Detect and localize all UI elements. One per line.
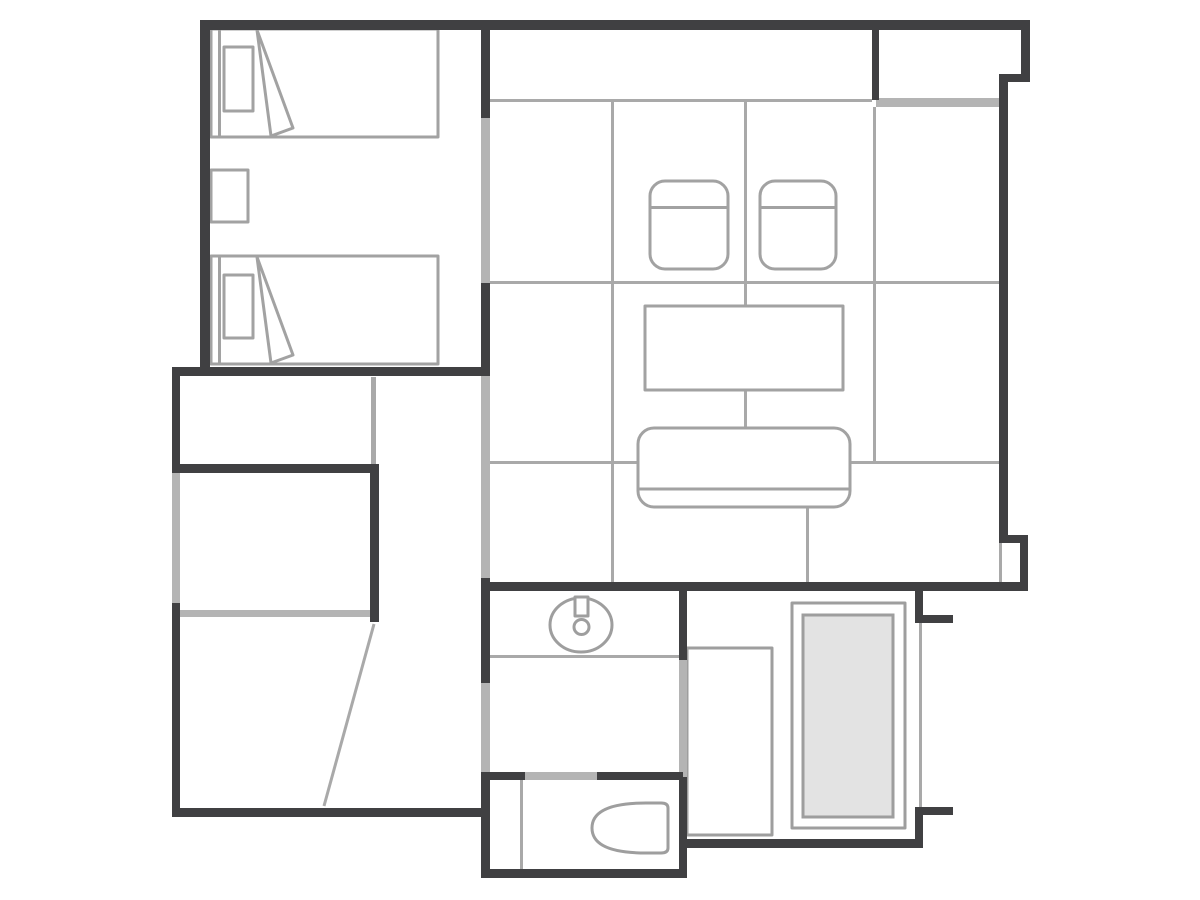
entrance-door-swing-line	[324, 624, 374, 806]
wall-toilet-left	[481, 772, 490, 878]
wall-notch-right	[1020, 535, 1028, 591]
floor-chair-2	[760, 181, 836, 269]
bedroom-tatami-sliding-door	[481, 118, 490, 283]
floor-plan-canvas	[0, 0, 1200, 900]
shower-tray	[687, 648, 772, 835]
wall-top	[200, 20, 1030, 30]
wall-closet-right	[370, 464, 379, 622]
sofa	[638, 428, 850, 507]
wall-bedroom-right-upper	[481, 20, 490, 118]
washbasin-faucet	[575, 597, 588, 616]
wall-toilet-top-left	[481, 772, 525, 780]
wall-alcove-divider	[872, 20, 879, 100]
bed-1	[211, 29, 438, 137]
washbasin-drain	[574, 620, 589, 635]
wall-bedroom-bottom	[172, 367, 490, 376]
floor-plan-drawing	[0, 0, 1200, 900]
bed-2	[211, 256, 438, 364]
toilet-sliding-door	[525, 772, 597, 780]
entrance-and-closet-lines	[324, 377, 376, 806]
alcove-sliding-doors	[876, 98, 1002, 107]
floor-chair-2-outline	[760, 181, 836, 269]
wall-closet-divider	[172, 464, 379, 473]
wall-bedroom-left	[200, 20, 210, 376]
wall-toilet-bottom	[481, 869, 687, 878]
wall-left-upper	[172, 367, 180, 473]
washbasin	[550, 597, 612, 652]
closet-sliding-door-line	[371, 377, 376, 464]
wall-main-right	[999, 80, 1008, 541]
wall-notch-inner-line	[999, 543, 1002, 582]
bathtub	[792, 603, 905, 828]
bedroom-furniture	[211, 29, 438, 364]
wall-toilet-top-right	[597, 772, 683, 780]
closet-partition-bar	[178, 610, 372, 617]
nightstand	[211, 170, 248, 222]
floor-chair-1-outline	[650, 181, 728, 269]
wall-bathroom-bottom	[679, 839, 923, 848]
wall-top-right-outer	[1021, 20, 1030, 82]
bed-1-pillow	[224, 47, 253, 111]
wet-area-fixtures	[490, 597, 905, 869]
wall-bedroom-right-lower	[481, 283, 490, 376]
floor-chair-1	[650, 181, 728, 269]
corridor-tatami-sliding-door	[481, 373, 490, 578]
wall-bathroom-stub-upper	[915, 615, 953, 623]
low-table	[645, 306, 843, 390]
sofa-outline	[638, 428, 850, 507]
bed-2-pillow	[224, 275, 253, 338]
wall-main-bottom	[481, 582, 1028, 591]
washroom-bathroom-door	[679, 660, 687, 777]
wall-left-lower	[172, 603, 180, 817]
left-wall-window	[172, 473, 180, 603]
wall-entrance-bottom	[172, 808, 490, 817]
wall-bathroom-left-upper	[679, 582, 687, 660]
bathtub-inner-basin	[803, 615, 893, 817]
wall-toilet-right	[679, 777, 687, 878]
bathroom-window-line	[919, 623, 922, 807]
hall-washroom-door	[481, 683, 490, 772]
wall-washroom-left-upper	[481, 578, 490, 683]
toilet-bowl	[592, 803, 668, 853]
